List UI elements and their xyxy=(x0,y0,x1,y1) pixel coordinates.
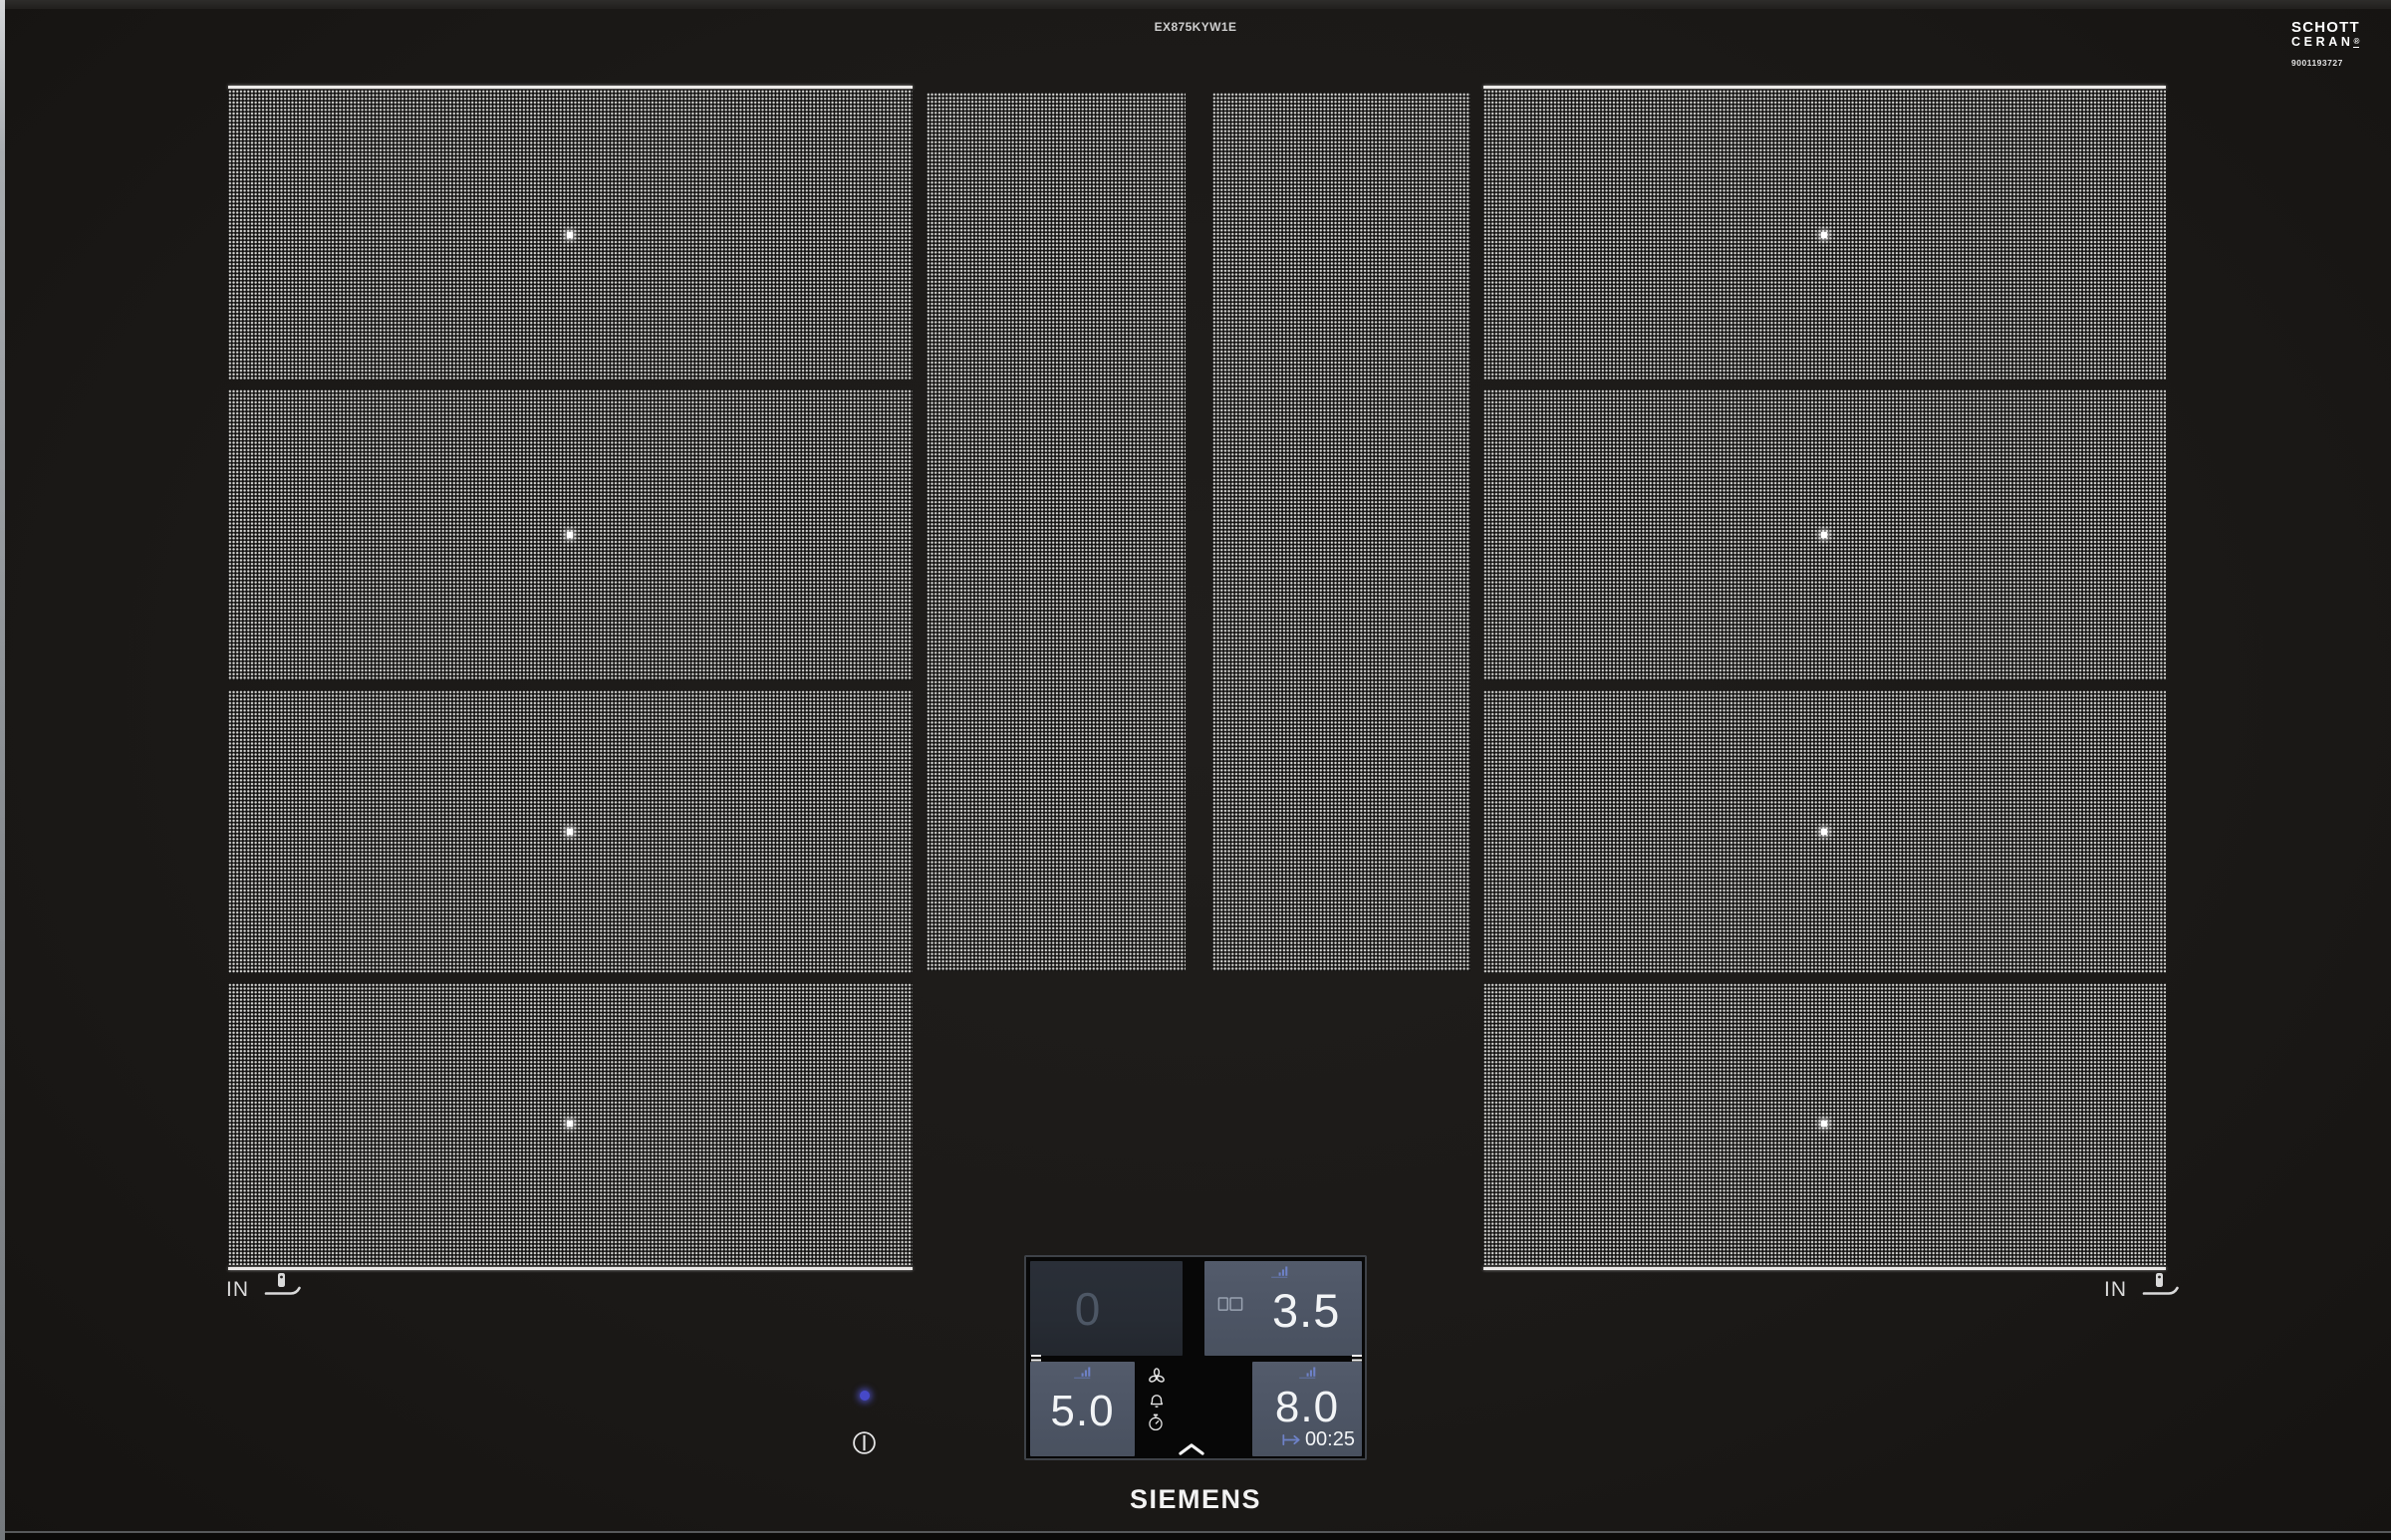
power-button[interactable] xyxy=(852,1430,878,1456)
model-number-label: EX875KYW1E xyxy=(0,20,2391,34)
status-led xyxy=(860,1391,870,1401)
power-icon xyxy=(852,1442,877,1459)
glass-bottom-edge xyxy=(0,1531,2391,1540)
in-label-right: IN xyxy=(2104,1278,2127,1301)
schott-ceran-logo: SCHOTT CERAN® 9001193727 xyxy=(2291,20,2381,68)
cook-zone-mid-left xyxy=(927,93,1186,971)
stopwatch-icon xyxy=(1147,1419,1165,1436)
chevron-up-icon xyxy=(1179,1442,1204,1459)
timer-value: 00:25 xyxy=(1305,1429,1355,1449)
zone-cap-left-top xyxy=(228,86,913,89)
power-level-icon xyxy=(1270,1265,1289,1283)
zone-cap-right-top xyxy=(1483,86,2166,89)
zone-center-dot xyxy=(1821,532,1827,538)
cooktop-surface: EX875KYW1E SCHOTT CERAN® 9001193727 IN I… xyxy=(0,0,2391,1540)
metal-left-edge xyxy=(0,0,5,1540)
bridge-handle-left[interactable] xyxy=(1031,1355,1041,1362)
bell-icon xyxy=(1148,1397,1166,1413)
alarm-button[interactable] xyxy=(1148,1392,1166,1414)
fan-icon xyxy=(1146,1375,1168,1392)
zone-center-dot xyxy=(1821,829,1827,835)
ceran-logo-line2: CERAN® xyxy=(2291,35,2381,49)
in-label-left: IN xyxy=(226,1278,249,1301)
zone-cap-left-bottom xyxy=(228,1267,913,1270)
fan-button[interactable] xyxy=(1146,1366,1168,1393)
zone-center-dot xyxy=(567,829,573,835)
siemens-logo: SIEMENS xyxy=(0,1484,2391,1515)
power-level-icon xyxy=(1298,1366,1317,1384)
zone-center-dot xyxy=(567,232,573,238)
zone-cap-right-bottom xyxy=(1483,1267,2166,1270)
zone-tile-front-right[interactable]: 8.0 00:25 xyxy=(1252,1362,1362,1456)
panel-expand-button[interactable] xyxy=(1179,1442,1204,1460)
bridge-handle-right[interactable] xyxy=(1352,1355,1362,1362)
cook-zone-mid-right xyxy=(1212,93,1470,971)
zone-center-dot xyxy=(1821,1121,1827,1127)
timer-button[interactable] xyxy=(1147,1413,1165,1437)
zone-value-front-right: 8.0 xyxy=(1252,1386,1362,1429)
power-level-icon xyxy=(1073,1366,1092,1384)
timer-end-icon xyxy=(1281,1433,1302,1446)
registered-mark: ® xyxy=(2353,37,2359,48)
bridge-zones-icon xyxy=(1217,1296,1243,1318)
zone-timer-row: 00:25 xyxy=(1281,1429,1355,1449)
zone-value-rear-left: 0 xyxy=(1060,1286,1116,1332)
schott-logo-line1: SCHOTT xyxy=(2291,20,2381,35)
zone-tile-rear-left[interactable]: 0 xyxy=(1030,1261,1183,1356)
pan-sensor-icon xyxy=(2142,1272,2180,1304)
zone-tile-front-left[interactable]: 5.0 xyxy=(1030,1362,1135,1456)
pan-sensor-icon xyxy=(264,1272,302,1304)
zone-value-front-left: 5.0 xyxy=(1030,1390,1135,1433)
in-marker-left: IN xyxy=(226,1278,249,1302)
zone-tile-rear-right[interactable]: 3.5 xyxy=(1204,1261,1362,1356)
glass-code: 9001193727 xyxy=(2291,58,2381,68)
zone-center-dot xyxy=(1821,232,1827,238)
zone-value-rear-right: 3.5 xyxy=(1272,1287,1336,1334)
zone-center-dot xyxy=(567,1121,573,1127)
in-marker-right: IN xyxy=(2104,1278,2127,1302)
zone-center-dot xyxy=(567,532,573,538)
glass-top-edge xyxy=(0,0,2391,9)
